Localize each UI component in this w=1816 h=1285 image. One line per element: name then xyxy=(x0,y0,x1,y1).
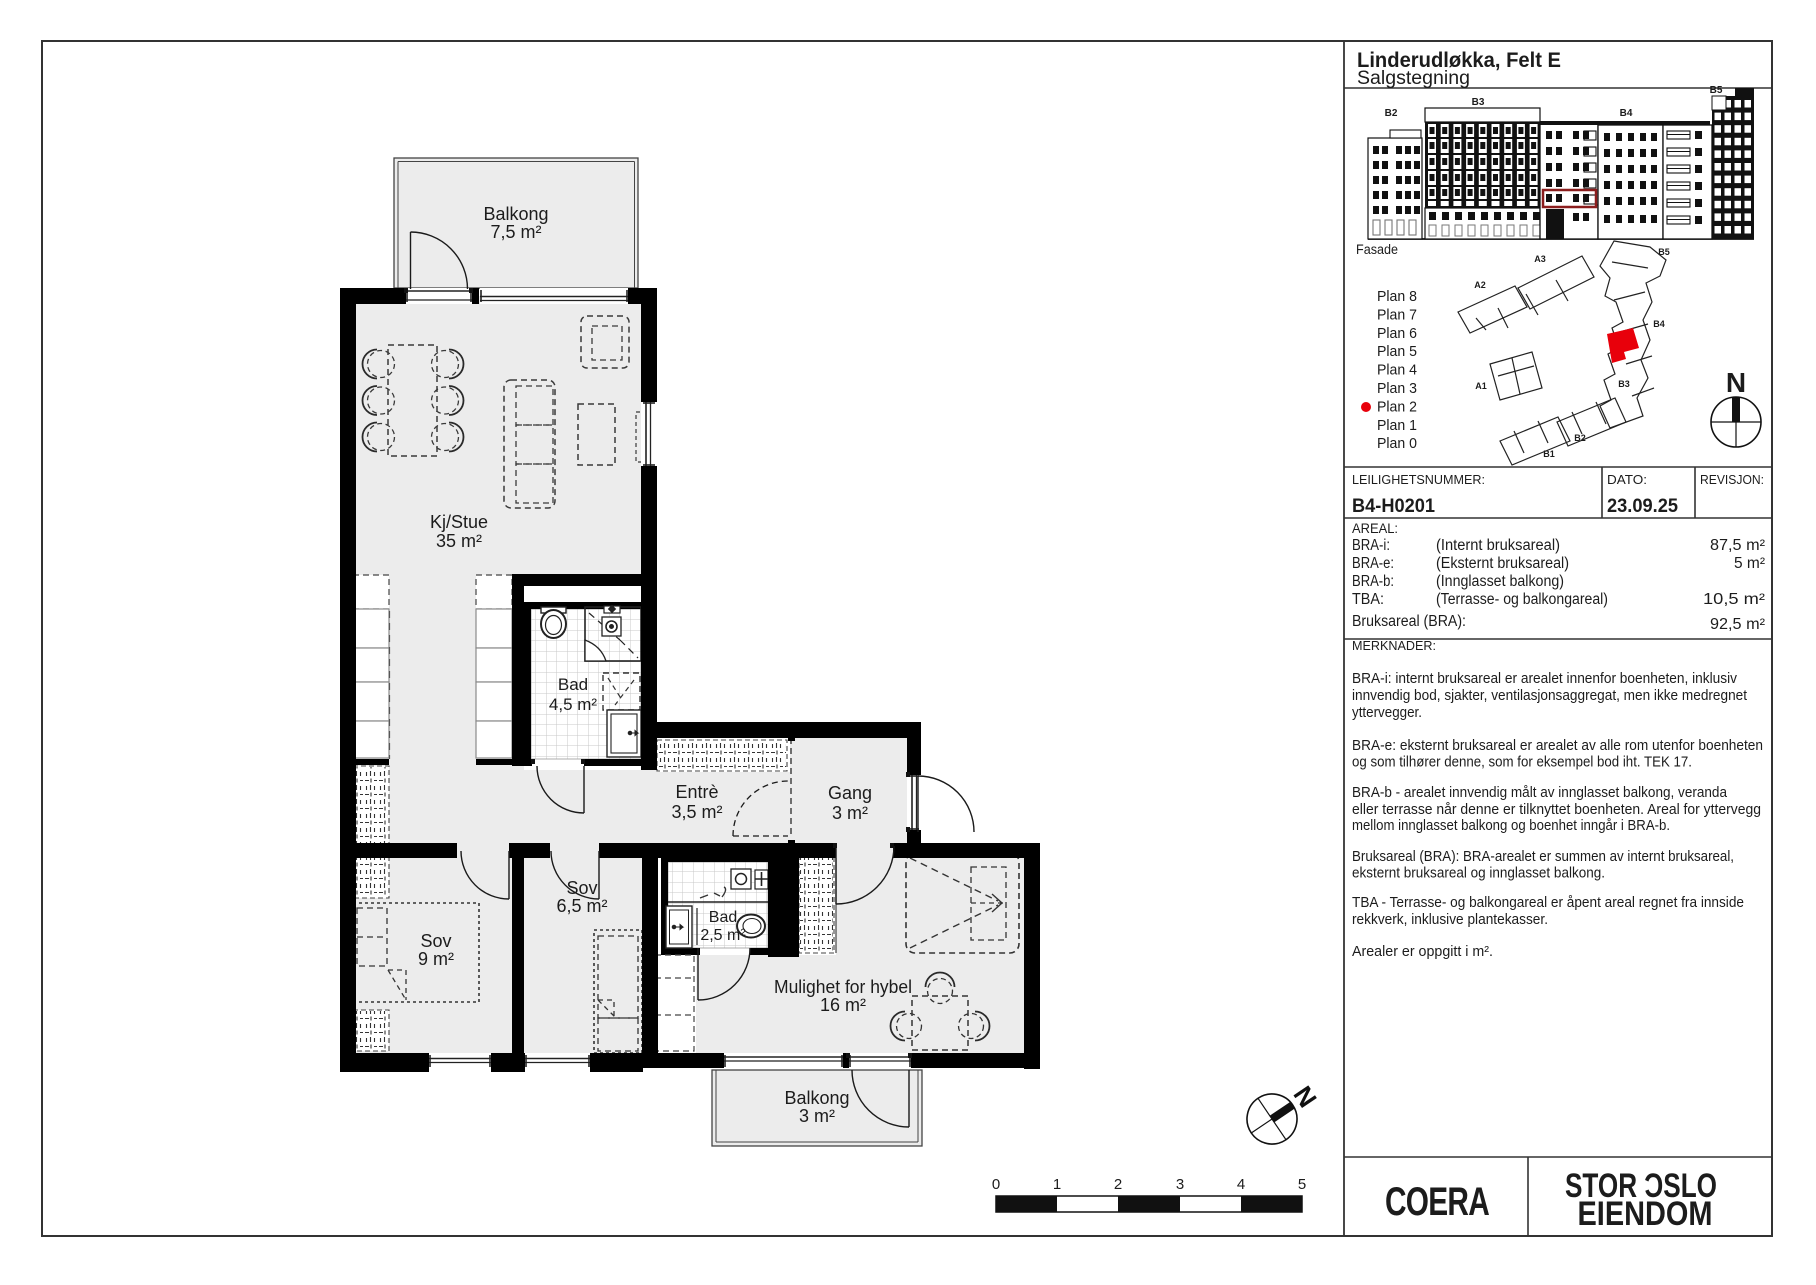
svg-text:3 m²: 3 m² xyxy=(799,1106,835,1126)
svg-text:87,5 m²: 87,5 m² xyxy=(1710,537,1765,554)
svg-text:35 m²: 35 m² xyxy=(436,531,482,551)
svg-text:MERKNADER:: MERKNADER: xyxy=(1352,638,1436,653)
svg-text:N: N xyxy=(1726,367,1746,398)
svg-text:16 m²: 16 m² xyxy=(820,995,866,1015)
svg-text:A2: A2 xyxy=(1474,280,1486,290)
svg-text:2: 2 xyxy=(1114,1176,1122,1193)
svg-text:B2: B2 xyxy=(1385,108,1398,119)
svg-text:3: 3 xyxy=(1176,1176,1184,1193)
svg-text:3,5 m²: 3,5 m² xyxy=(671,802,722,822)
svg-text:2,5 m²: 2,5 m² xyxy=(700,927,746,944)
svg-text:Arealer er oppgitt i m².: Arealer er oppgitt i m². xyxy=(1352,944,1493,960)
svg-text:BRA-i:: BRA-i: xyxy=(1352,537,1390,554)
svg-text:0: 0 xyxy=(992,1176,1000,1193)
svg-text:5 m²: 5 m² xyxy=(1734,555,1765,572)
svg-text:BRA-b - arealet innvendig målt: BRA-b - arealet innvendig målt av inngla… xyxy=(1352,785,1728,801)
svg-text:Mulighet for hybel: Mulighet for hybel xyxy=(774,977,912,997)
svg-text:(Internt bruksareal): (Internt bruksareal) xyxy=(1436,537,1560,554)
svg-text:B5: B5 xyxy=(1658,247,1670,257)
svg-text:Plan 5: Plan 5 xyxy=(1377,343,1417,360)
svg-text:9 m²: 9 m² xyxy=(418,949,454,969)
svg-text:B1: B1 xyxy=(1543,449,1555,459)
svg-text:Plan 1: Plan 1 xyxy=(1377,417,1417,434)
svg-text:Plan 7: Plan 7 xyxy=(1377,306,1417,323)
svg-text:(Terrasse- og balkongareal): (Terrasse- og balkongareal) xyxy=(1436,591,1608,608)
svg-text:AREAL:: AREAL: xyxy=(1352,521,1398,536)
svg-text:Bad: Bad xyxy=(709,909,737,926)
svg-text:4: 4 xyxy=(1237,1176,1245,1193)
svg-text:(Eksternt bruksareal): (Eksternt bruksareal) xyxy=(1436,555,1569,572)
svg-text:3 m²: 3 m² xyxy=(832,803,868,823)
svg-text:BRA-i: internt bruksareal er a: BRA-i: internt bruksareal er arealet inn… xyxy=(1352,671,1738,687)
svg-text:LEILIGHETSNUMMER:: LEILIGHETSNUMMER: xyxy=(1352,472,1485,487)
svg-text:BRA-b:: BRA-b: xyxy=(1352,573,1394,590)
svg-text:Kj/Stue: Kj/Stue xyxy=(430,512,488,532)
svg-text:innvendig bod, sjakter, ventil: innvendig bod, sjakter, ventilasjonsaggr… xyxy=(1352,688,1747,704)
svg-text:yttervegger.: yttervegger. xyxy=(1352,705,1422,721)
svg-text:7,5 m²: 7,5 m² xyxy=(490,222,541,242)
svg-text:mellom innglasset balkong og b: mellom innglasset balkong og boenhet inn… xyxy=(1352,818,1670,834)
svg-text:A1: A1 xyxy=(1475,381,1487,391)
svg-text:Balkong: Balkong xyxy=(483,204,548,224)
svg-text:(Innglasset balkong): (Innglasset balkong) xyxy=(1436,573,1564,590)
svg-text:Entrè: Entrè xyxy=(675,782,718,802)
svg-text:10,5 m²: 10,5 m² xyxy=(1703,591,1765,608)
svg-text:Bruksareal (BRA): BRA-arealet: Bruksareal (BRA): BRA-arealet er summen … xyxy=(1352,849,1734,865)
svg-text:Balkong: Balkong xyxy=(784,1088,849,1108)
svg-text:B2: B2 xyxy=(1574,433,1586,443)
svg-text:Plan 4: Plan 4 xyxy=(1377,362,1417,379)
svg-text:B4: B4 xyxy=(1620,108,1633,119)
svg-text:B3: B3 xyxy=(1472,97,1485,108)
svg-text:4,5 m²: 4,5 m² xyxy=(549,695,598,714)
svg-text:DATO:: DATO: xyxy=(1607,472,1647,487)
svg-text:92,5 m²: 92,5 m² xyxy=(1710,616,1765,633)
svg-text:Salgstegning: Salgstegning xyxy=(1357,68,1470,89)
svg-text:Plan 0: Plan 0 xyxy=(1377,435,1417,452)
svg-text:6,5 m²: 6,5 m² xyxy=(556,896,607,916)
svg-text:B3: B3 xyxy=(1618,379,1630,389)
svg-text:TBA:: TBA: xyxy=(1352,591,1384,608)
svg-text:B4-H0201: B4-H0201 xyxy=(1352,496,1435,517)
svg-text:Plan 8: Plan 8 xyxy=(1377,288,1417,305)
svg-text:Fasade: Fasade xyxy=(1356,242,1398,257)
svg-text:Gang: Gang xyxy=(828,783,872,803)
svg-text:BRA-e: eksternt bruksareal er: BRA-e: eksternt bruksareal er arealet av… xyxy=(1352,738,1763,754)
svg-text:Plan 6: Plan 6 xyxy=(1377,325,1417,342)
svg-text:eksternt bruksareal og innglas: eksternt bruksareal og innglasset balkon… xyxy=(1352,866,1605,882)
svg-text:REVISJON:: REVISJON: xyxy=(1700,472,1764,487)
svg-text:eller terrasse når denne er ti: eller terrasse når denne er tilknyttet b… xyxy=(1352,802,1761,818)
svg-text:TBA - Terrasse- og balkongarea: TBA - Terrasse- og balkongareal er åpent… xyxy=(1352,895,1744,911)
svg-text:23.09.25: 23.09.25 xyxy=(1607,496,1678,517)
svg-text:A3: A3 xyxy=(1534,254,1546,264)
svg-text:1: 1 xyxy=(1053,1176,1061,1193)
svg-text:Plan 2: Plan 2 xyxy=(1377,398,1417,415)
svg-text:Sov: Sov xyxy=(566,878,597,898)
svg-text:B5: B5 xyxy=(1710,85,1723,96)
svg-text:Bad: Bad xyxy=(558,675,588,694)
svg-text:BRA-e:: BRA-e: xyxy=(1352,555,1394,572)
svg-text:rekkverk, inklusive plantekass: rekkverk, inklusive plantekasser. xyxy=(1352,912,1548,928)
svg-text:EIENDOM: EIENDOM xyxy=(1578,1195,1713,1233)
svg-text:Sov: Sov xyxy=(420,931,451,951)
svg-text:B4: B4 xyxy=(1653,319,1665,329)
svg-text:Bruksareal (BRA):: Bruksareal (BRA): xyxy=(1352,613,1466,630)
svg-text:Plan 3: Plan 3 xyxy=(1377,380,1417,397)
svg-text:og som tilhører denne, som for: og som tilhører denne, som for eksempel … xyxy=(1352,755,1692,771)
svg-text:COERA: COERA xyxy=(1385,1180,1489,1224)
svg-text:5: 5 xyxy=(1298,1176,1306,1193)
